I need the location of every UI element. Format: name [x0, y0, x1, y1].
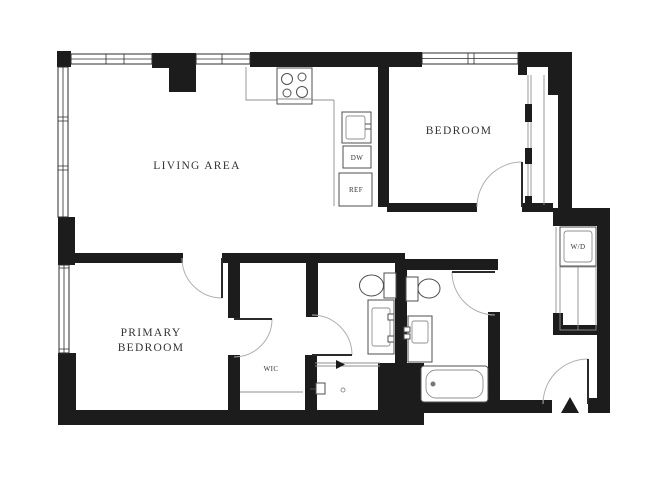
bathtub-faucet-icon — [431, 382, 436, 387]
primary-bedroom: PRIMARY BEDROOM — [118, 258, 222, 354]
washer-dryer: W/D — [560, 227, 596, 266]
door-swing-arc — [312, 315, 352, 355]
bathroom-door — [452, 272, 495, 315]
faucet-icon — [388, 314, 394, 320]
dishwasher-label: DW — [351, 154, 363, 162]
door-swing-arc — [477, 162, 522, 207]
burner-icon — [283, 89, 291, 97]
burner-icon — [298, 73, 306, 81]
shower-door-arrow-icon — [336, 360, 345, 369]
window-living-left — [58, 67, 68, 217]
living-area-label: LIVING AREA — [153, 160, 240, 172]
entry-door-swing-arc — [543, 359, 588, 404]
primary-bedroom-label-line2: BEDROOM — [118, 342, 185, 354]
door-swing-arc — [182, 258, 222, 298]
walk-in-closet: WIC — [234, 319, 303, 392]
refrigerator-label: REF — [349, 186, 363, 194]
bathroom-door — [312, 315, 352, 355]
window-primary-bedroom — [59, 265, 69, 353]
bedroom-label: BEDROOM — [426, 125, 493, 137]
shower-drain-icon — [341, 388, 345, 392]
faucet-icon — [388, 336, 394, 342]
washer-dryer-label: W/D — [571, 243, 586, 251]
toilet-tank — [384, 273, 396, 298]
door-swing-arc — [234, 319, 272, 357]
toilet-tank — [406, 277, 418, 301]
wic-label: WIC — [264, 365, 279, 373]
door-swing-arc — [452, 272, 495, 315]
refrigerator: REF — [339, 173, 372, 206]
window-living-top-right — [196, 54, 250, 64]
stove — [277, 68, 312, 104]
toilet-bowl — [360, 275, 384, 296]
primary-bedroom-door — [182, 258, 222, 298]
wic-door — [234, 319, 272, 357]
shower — [310, 360, 380, 394]
window-bedroom — [422, 53, 518, 64]
shower-glass-door — [315, 363, 380, 366]
primary-bedroom-label-line1: PRIMARY — [121, 327, 182, 339]
faucet-icon — [404, 327, 410, 332]
closet-door-stop — [525, 148, 532, 164]
bedroom-closet — [525, 75, 544, 206]
bedroom: BEDROOM — [426, 75, 544, 207]
kitchen: DW REF — [246, 67, 372, 206]
kitchen-sink — [342, 112, 371, 143]
vanity-sink — [404, 316, 432, 362]
bathtub — [421, 366, 488, 402]
toilet — [406, 277, 440, 301]
vanity-sink — [368, 300, 394, 354]
entry-arrow-icon — [561, 397, 579, 413]
floor-plan: DW REF LIVING AREA BEDROOM PRIMARY BEDRO… — [0, 0, 672, 479]
closet-sliding-door — [528, 75, 531, 205]
shower-head-icon — [316, 383, 325, 394]
bedroom-door — [477, 162, 522, 207]
dishwasher: DW — [343, 146, 371, 168]
toilet — [360, 273, 397, 298]
floor-plan-svg: DW REF LIVING AREA BEDROOM PRIMARY BEDRO… — [0, 0, 672, 479]
closet-door-stop — [525, 196, 532, 206]
burner-icon — [282, 74, 293, 85]
faucet-icon — [404, 334, 410, 339]
burner-icon — [297, 87, 308, 98]
toilet-bowl — [418, 279, 440, 298]
window-living-top-left — [71, 54, 152, 64]
closet-door-stop — [525, 104, 532, 122]
interior-walls — [75, 65, 553, 413]
